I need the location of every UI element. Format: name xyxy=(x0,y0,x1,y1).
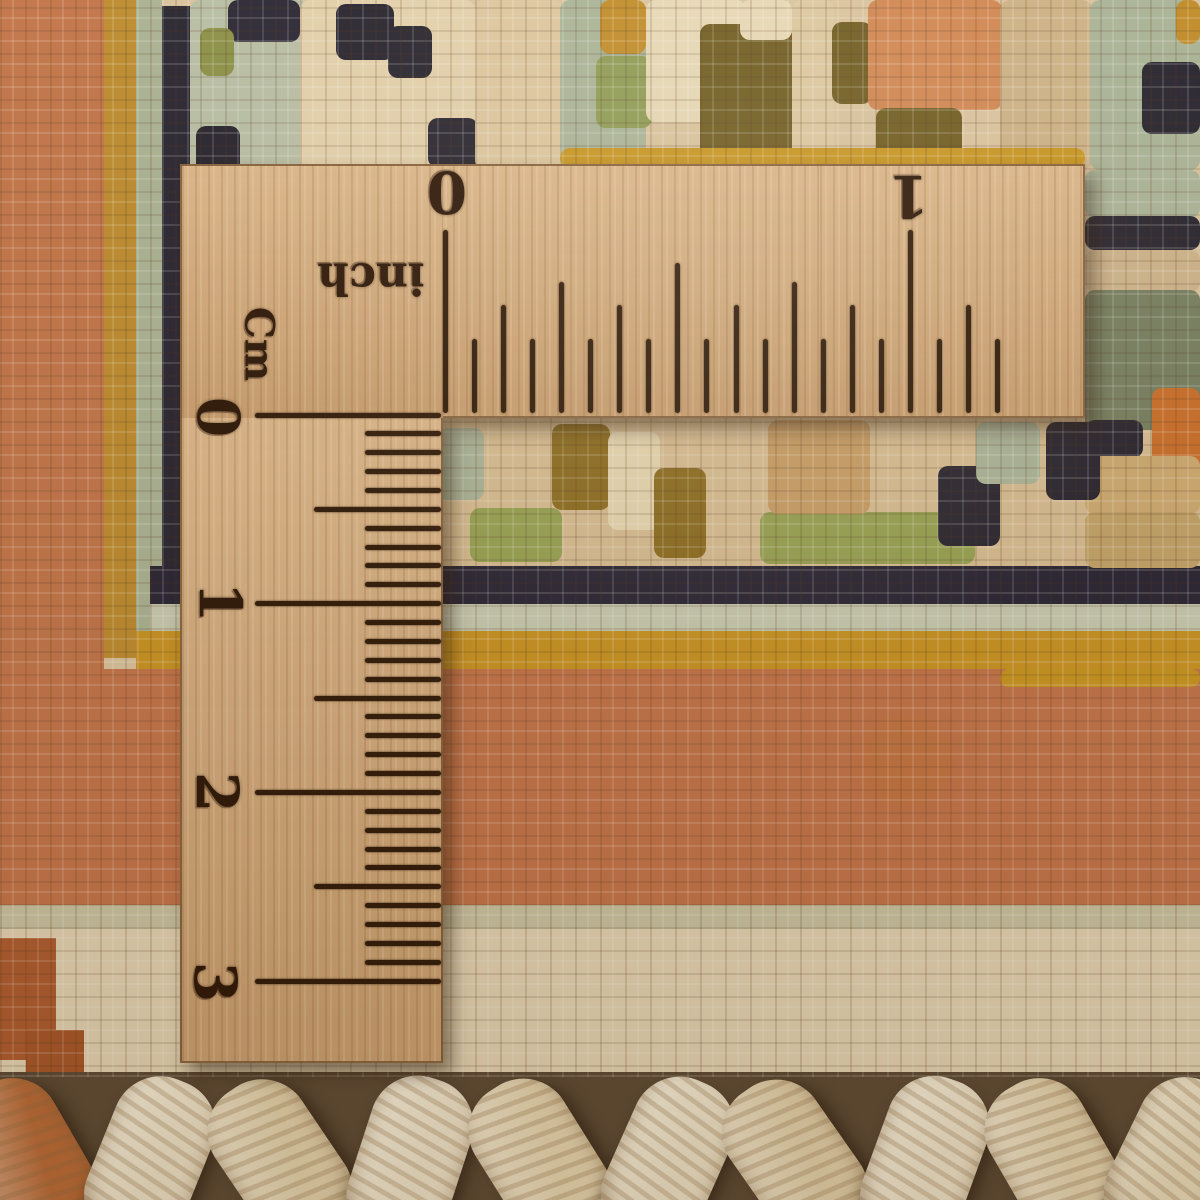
inch-tick-mark xyxy=(850,305,855,413)
inch-tick-mark xyxy=(995,339,1000,413)
cm-tick-mark xyxy=(255,979,441,984)
inch-tick-mark xyxy=(908,230,913,413)
cm-tick-mark xyxy=(365,639,441,644)
inch-tick-mark xyxy=(966,305,971,413)
cm-tick-mark xyxy=(365,431,441,436)
inch-tick-mark xyxy=(617,305,622,413)
inch-tick-mark xyxy=(530,339,535,413)
cm-scale-number: 3 xyxy=(181,962,249,1002)
cm-tick-mark xyxy=(314,507,441,512)
cm-scale-number: 1 xyxy=(186,582,254,622)
cm-tick-mark xyxy=(255,790,441,795)
cm-tick-mark xyxy=(365,752,441,757)
cm-tick-mark xyxy=(365,941,441,946)
cm-tick-mark xyxy=(365,677,441,682)
inch-tick-mark xyxy=(443,230,448,413)
cm-tick-mark xyxy=(365,960,441,965)
cm-tick-mark xyxy=(365,771,441,776)
inch-tick-mark xyxy=(472,339,477,413)
cm-tick-mark xyxy=(365,526,441,531)
inch-tick-mark xyxy=(879,339,884,413)
cm-tick-mark xyxy=(365,828,441,833)
cm-tick-mark xyxy=(365,620,441,625)
wooden-l-square-ruler: 010123inchCm xyxy=(0,0,1200,1200)
cm-tick-mark xyxy=(365,450,441,455)
inch-tick-mark xyxy=(501,305,506,413)
cm-tick-mark xyxy=(255,413,441,418)
inch-tick-mark xyxy=(588,339,593,413)
cm-tick-mark xyxy=(365,488,441,493)
inch-tick-mark xyxy=(763,339,768,413)
cm-tick-mark xyxy=(365,714,441,719)
inch-scale-number: 1 xyxy=(889,162,929,230)
cm-tick-mark xyxy=(314,884,441,889)
cm-unit-label: Cm xyxy=(236,307,283,381)
cm-tick-mark xyxy=(365,545,441,550)
inch-tick-mark xyxy=(646,339,651,413)
inch-tick-mark xyxy=(675,263,680,413)
cm-scale-number: 0 xyxy=(184,397,252,437)
cm-tick-mark xyxy=(365,847,441,852)
cm-tick-mark xyxy=(365,809,441,814)
inch-tick-mark xyxy=(559,282,564,413)
cm-tick-mark xyxy=(365,469,441,474)
cm-tick-mark xyxy=(365,582,441,587)
inch-tick-mark xyxy=(937,339,942,413)
cm-tick-mark xyxy=(365,865,441,870)
cm-scale-number: 2 xyxy=(183,772,251,812)
cm-tick-mark xyxy=(365,658,441,663)
cm-tick-mark xyxy=(314,696,441,701)
inch-tick-mark xyxy=(704,339,709,413)
carpet-macro-photo: 010123inchCm xyxy=(0,0,1200,1200)
cm-tick-mark xyxy=(365,733,441,738)
inch-tick-mark xyxy=(821,339,826,413)
inch-tick-mark xyxy=(792,282,797,413)
cm-tick-mark xyxy=(365,563,441,568)
cm-tick-mark xyxy=(365,903,441,908)
cm-tick-mark xyxy=(255,601,441,606)
inch-tick-mark xyxy=(734,305,739,413)
inch-unit-label: inch xyxy=(317,253,425,304)
inch-scale-number: 0 xyxy=(427,158,467,226)
cm-tick-mark xyxy=(365,922,441,927)
